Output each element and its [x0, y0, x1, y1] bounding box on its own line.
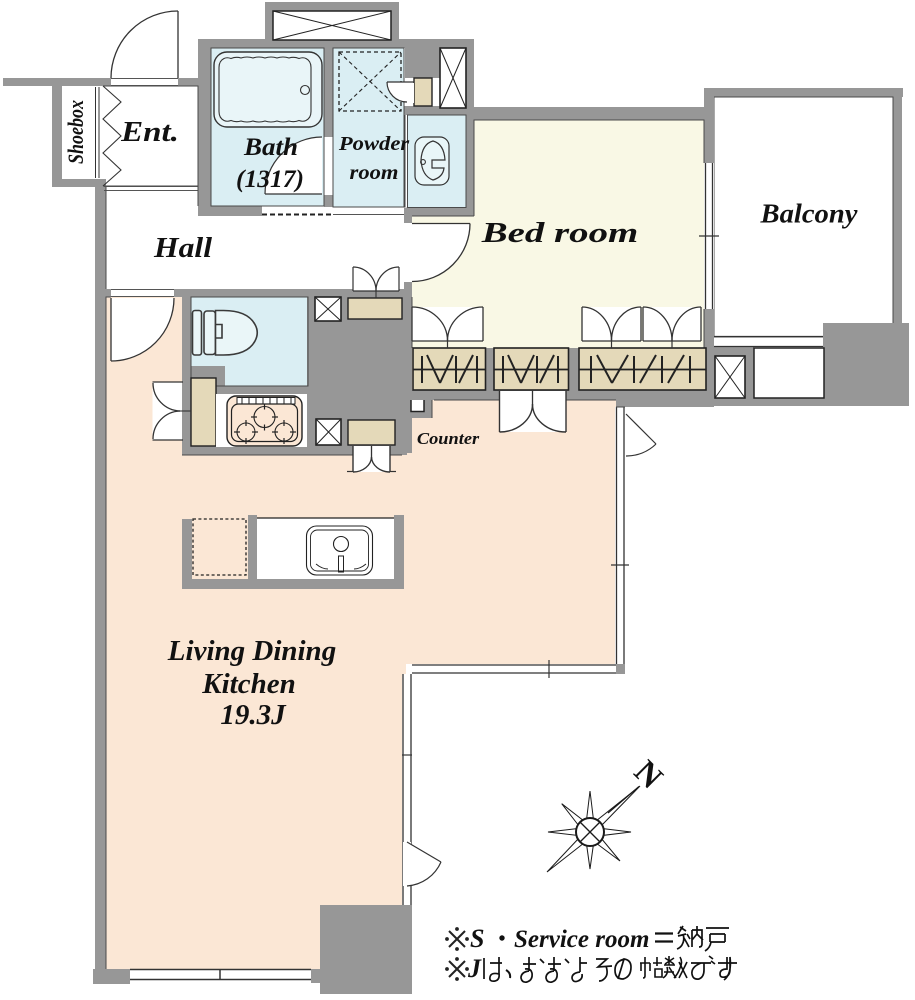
svg-text:Counter: Counter	[417, 429, 480, 448]
svg-text:Hall: Hall	[153, 231, 213, 264]
svg-text:Balcony: Balcony	[759, 199, 858, 229]
svg-text:room: room	[350, 161, 399, 183]
svg-text:Service room: Service room	[514, 926, 649, 953]
svg-text:Ent.: Ent.	[120, 116, 179, 147]
svg-text:S: S	[470, 924, 484, 953]
svg-text:Bed room: Bed room	[481, 217, 639, 249]
svg-text:N: N	[627, 754, 669, 796]
svg-text:Powder: Powder	[338, 132, 410, 154]
svg-text:19.3J: 19.3J	[220, 699, 287, 731]
svg-text:Living Dining: Living Dining	[167, 635, 336, 667]
svg-text:J: J	[467, 954, 482, 983]
svg-text:Bath: Bath	[243, 133, 298, 161]
svg-text:(1317): (1317)	[236, 165, 304, 193]
svg-text:Shoebox: Shoebox	[64, 100, 88, 164]
svg-text:Kitchen: Kitchen	[201, 668, 295, 700]
